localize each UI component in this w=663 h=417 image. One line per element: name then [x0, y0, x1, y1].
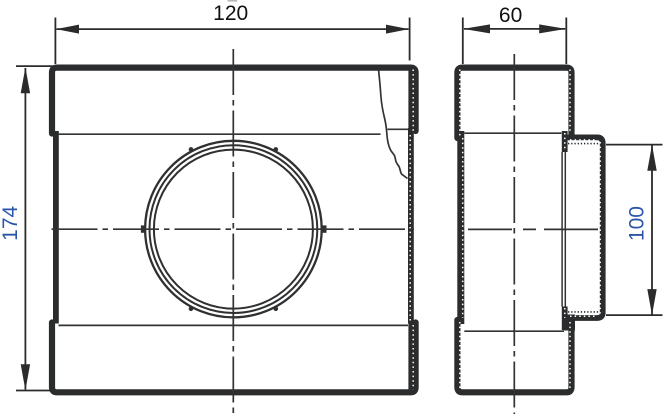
svg-text:100: 100: [626, 206, 649, 241]
svg-text:60: 60: [499, 4, 522, 27]
svg-text:120: 120: [213, 2, 248, 25]
svg-text:174: 174: [0, 205, 22, 240]
